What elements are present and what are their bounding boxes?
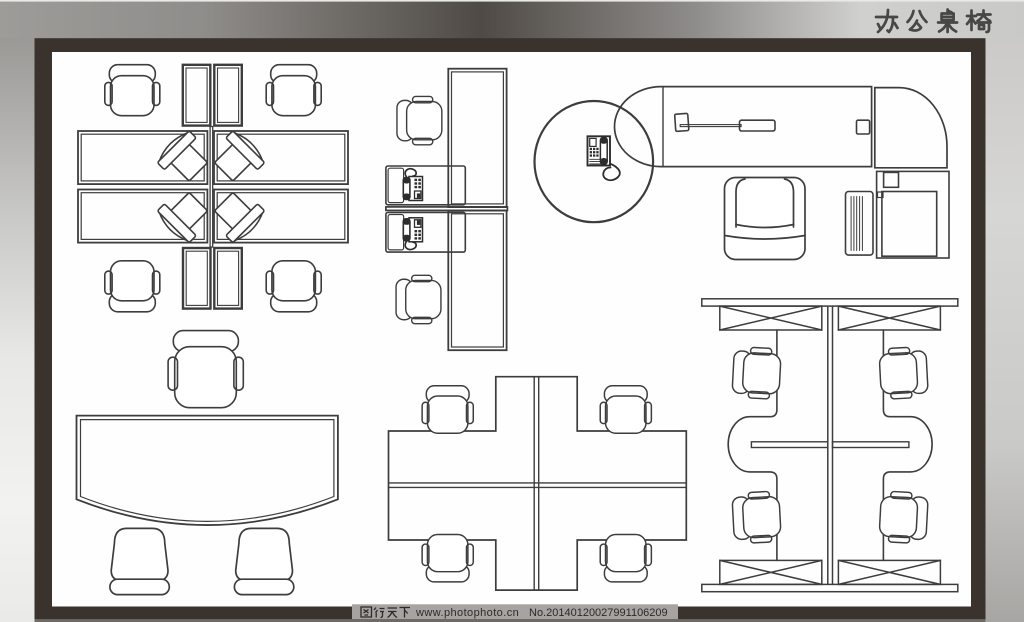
svg-text:www.photophoto.cn: www.photophoto.cn [415,607,519,619]
svg-text:No.20140120027991106209: No.20140120027991106209 [529,607,668,619]
